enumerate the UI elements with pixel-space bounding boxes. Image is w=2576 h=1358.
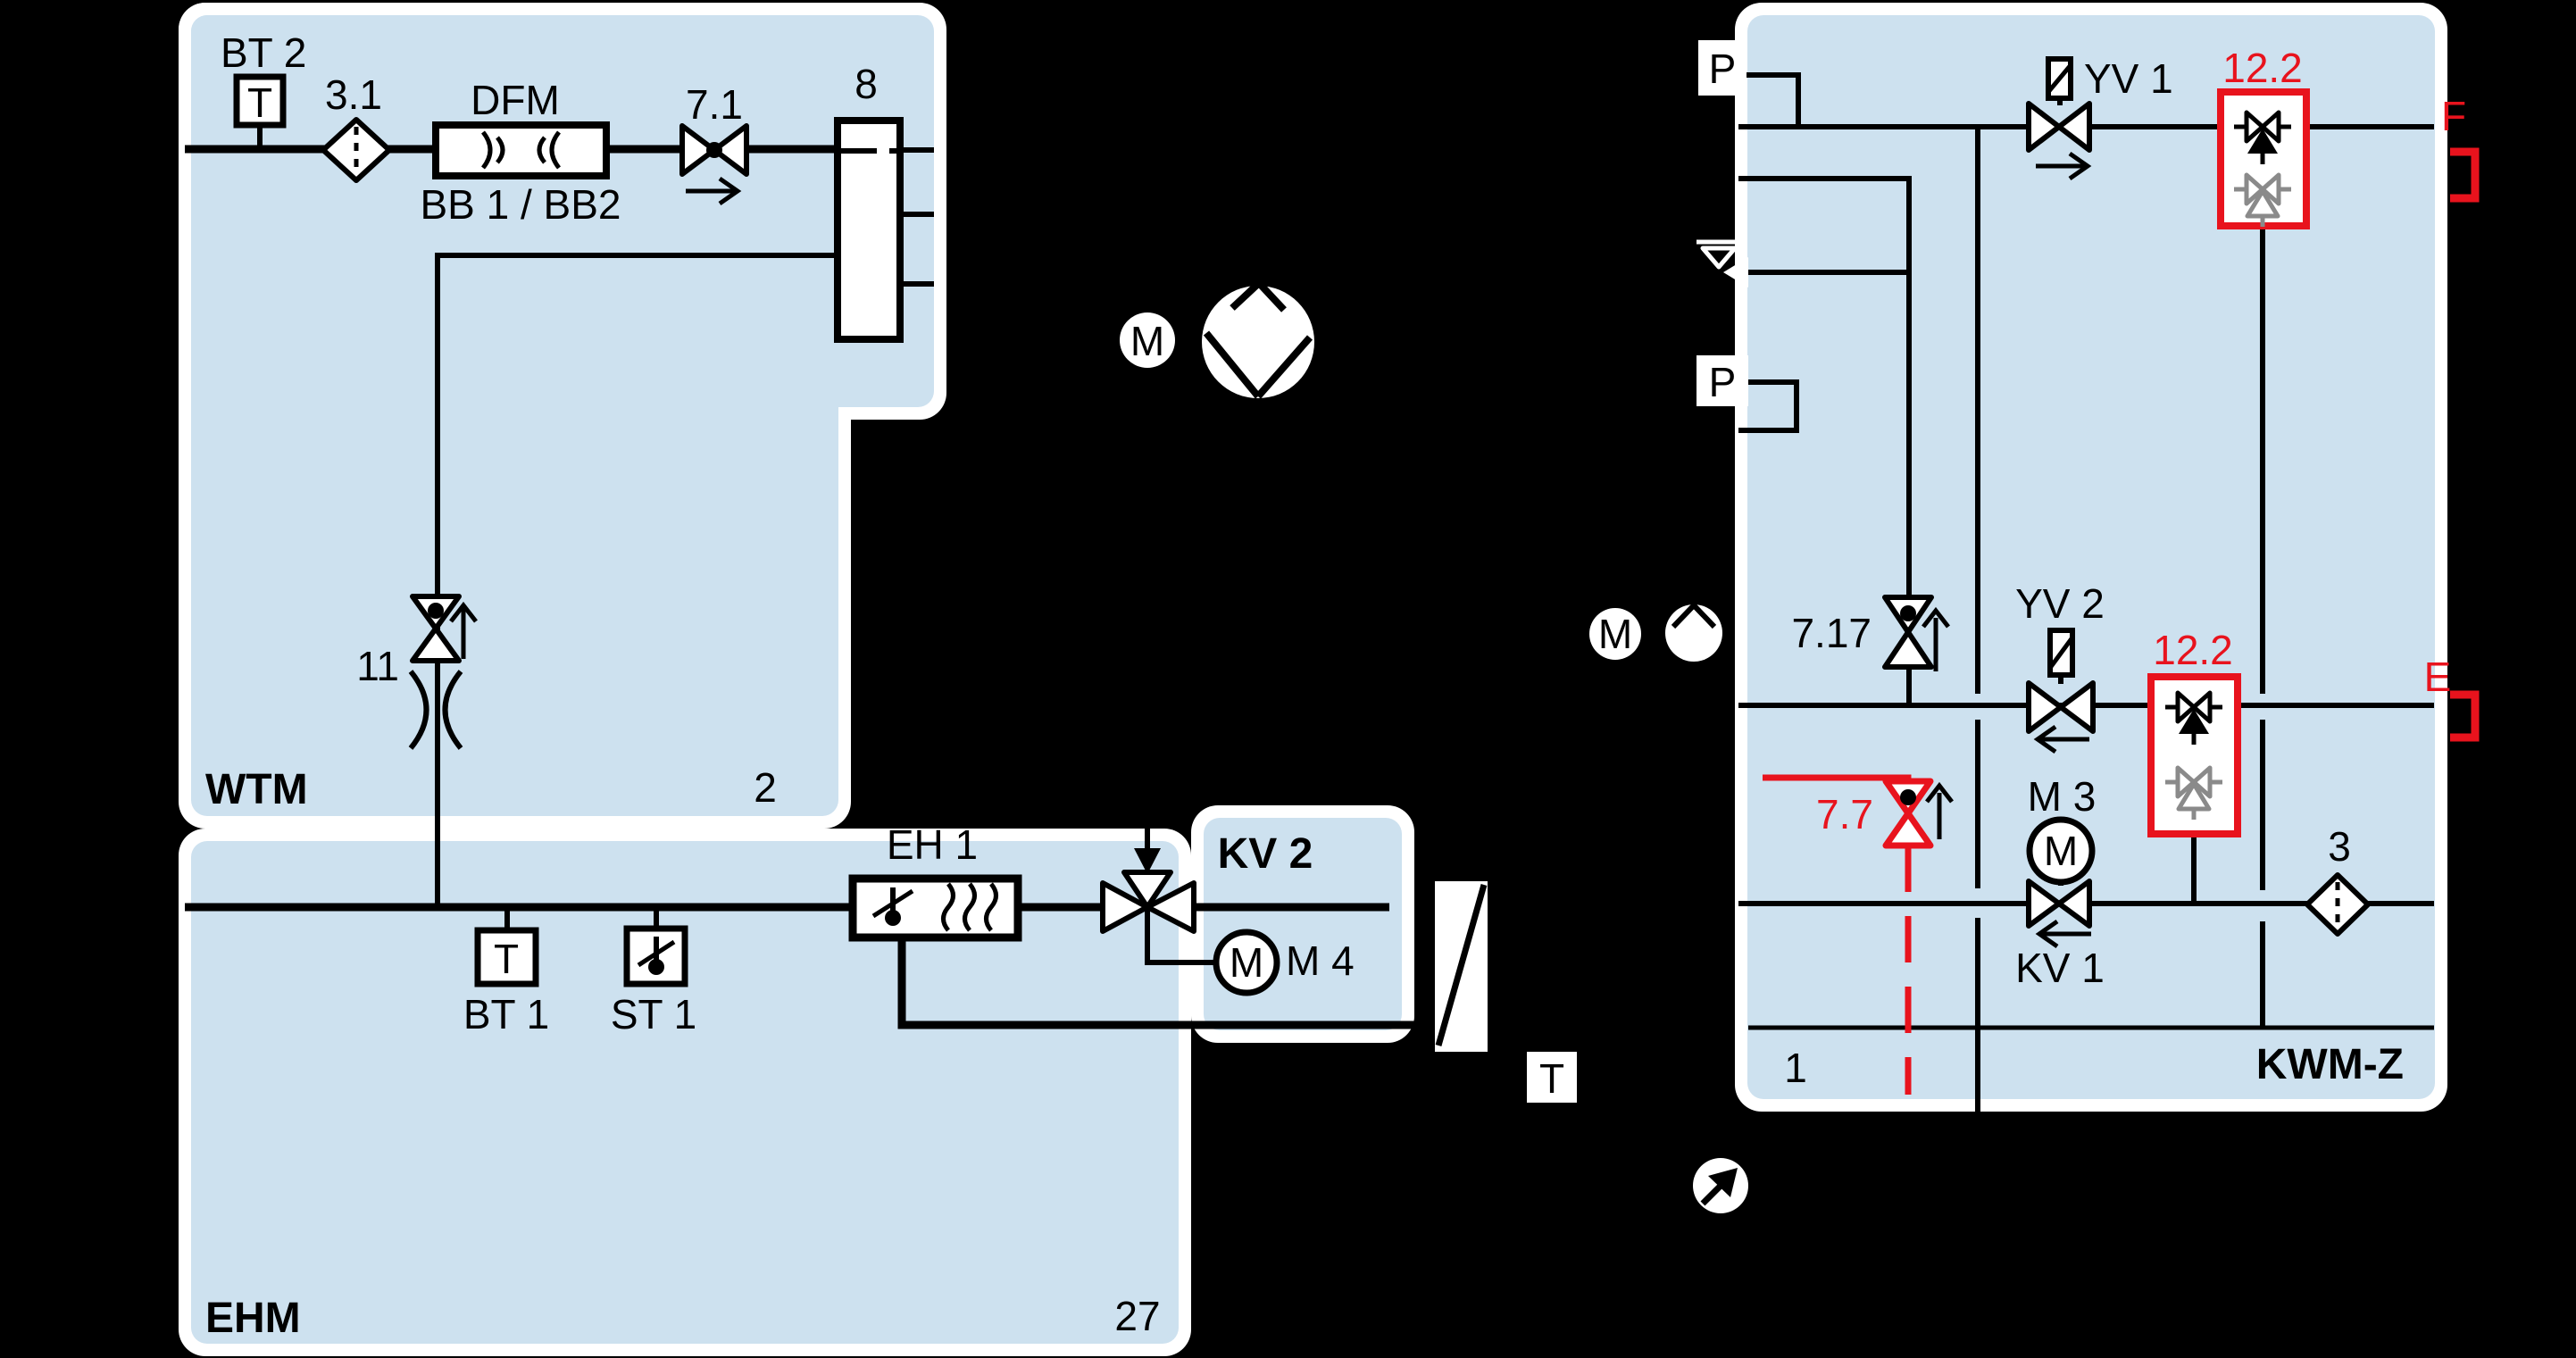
valve-7-1-label: 7.1 [686, 81, 743, 128]
m4-label: M 4 [1286, 937, 1355, 984]
dfm-flowmeter-icon [436, 125, 606, 176]
valve-11-label: 11 [356, 643, 399, 689]
dfm-sublabel: BB 1 / BB2 [420, 181, 621, 228]
yv2-label: YV 2 [2015, 580, 2105, 627]
ehm-block-label: EHM [205, 1295, 301, 1342]
pump-main: M [1120, 283, 1314, 398]
bt2-symbol: T [247, 79, 272, 126]
st1-sensor [627, 929, 685, 984]
separator-12-2-top-icon [2221, 92, 2306, 227]
bt2-label: BT 2 [221, 29, 306, 76]
pressure-top-symbol: P [1709, 46, 1737, 92]
pump-kwm-motor-symbol: M [1598, 611, 1632, 657]
pressure-gauge-top: P [1698, 40, 1747, 96]
ehm-block-number: 27 [1114, 1293, 1160, 1339]
m4-motor: M [1216, 932, 1277, 993]
schematic-canvas: T T [0, 0, 2576, 1358]
dfm-label: DFM [471, 77, 560, 123]
m3-label: M 3 [2028, 773, 2097, 820]
bt1-label: BT 1 [463, 991, 549, 1037]
filter-3-1-label: 3.1 [325, 71, 382, 118]
wtm-block-number: 2 [754, 764, 777, 811]
bt2-sensor: T [237, 77, 283, 126]
bt1-sensor: T [478, 930, 536, 984]
separator-12-2-mid-icon [2151, 677, 2238, 834]
bt1-symbol: T [494, 936, 519, 982]
pump-main-motor-symbol: M [1130, 318, 1164, 364]
kwmz-block-number: 1 [1784, 1045, 1807, 1091]
separator-top-label: 12.2 [2222, 45, 2303, 91]
filter-3-label: 3 [2328, 823, 2351, 870]
m3-motor: M [2030, 820, 2092, 882]
valve-7-7-label: 7.7 [1816, 791, 1873, 837]
outlet-e-label: E [2424, 654, 2452, 700]
valve-7-17-label: 7.17 [1791, 610, 1872, 656]
pressure-mid-symbol: P [1709, 359, 1737, 405]
outlet-bracket-f-icon [2450, 152, 2475, 198]
m4-symbol: M [1230, 939, 1263, 986]
separator-mid-label: 12.2 [2153, 627, 2233, 673]
flow-direction-circle-icon [1693, 1158, 1748, 1213]
manifold-8-label: 8 [854, 61, 878, 107]
drain-t-symbol: T [1539, 1055, 1564, 1102]
kv2-block-label: KV 2 [1218, 830, 1313, 878]
piping-diagram: T T [0, 0, 2576, 1358]
outlet-bracket-e-icon [2450, 695, 2475, 737]
st1-label: ST 1 [611, 991, 696, 1037]
drain-temperature-box: T [1527, 1052, 1577, 1103]
system-separator-icon [1435, 881, 1488, 1052]
outlet-f-label: F [2441, 93, 2466, 139]
pressure-gauge-mid: P [1696, 355, 1748, 406]
kv1-label: KV 1 [2015, 945, 2105, 991]
eh1-heater-icon [853, 879, 1018, 937]
kwmz-block-label: KWM-Z [2256, 1041, 2404, 1088]
wtm-block-label: WTM [205, 766, 308, 813]
m3-symbol: M [2044, 828, 2078, 874]
pump-kwm: M [1589, 604, 1722, 662]
yv1-label: YV 1 [2084, 55, 2173, 102]
eh1-label: EH 1 [887, 821, 978, 868]
